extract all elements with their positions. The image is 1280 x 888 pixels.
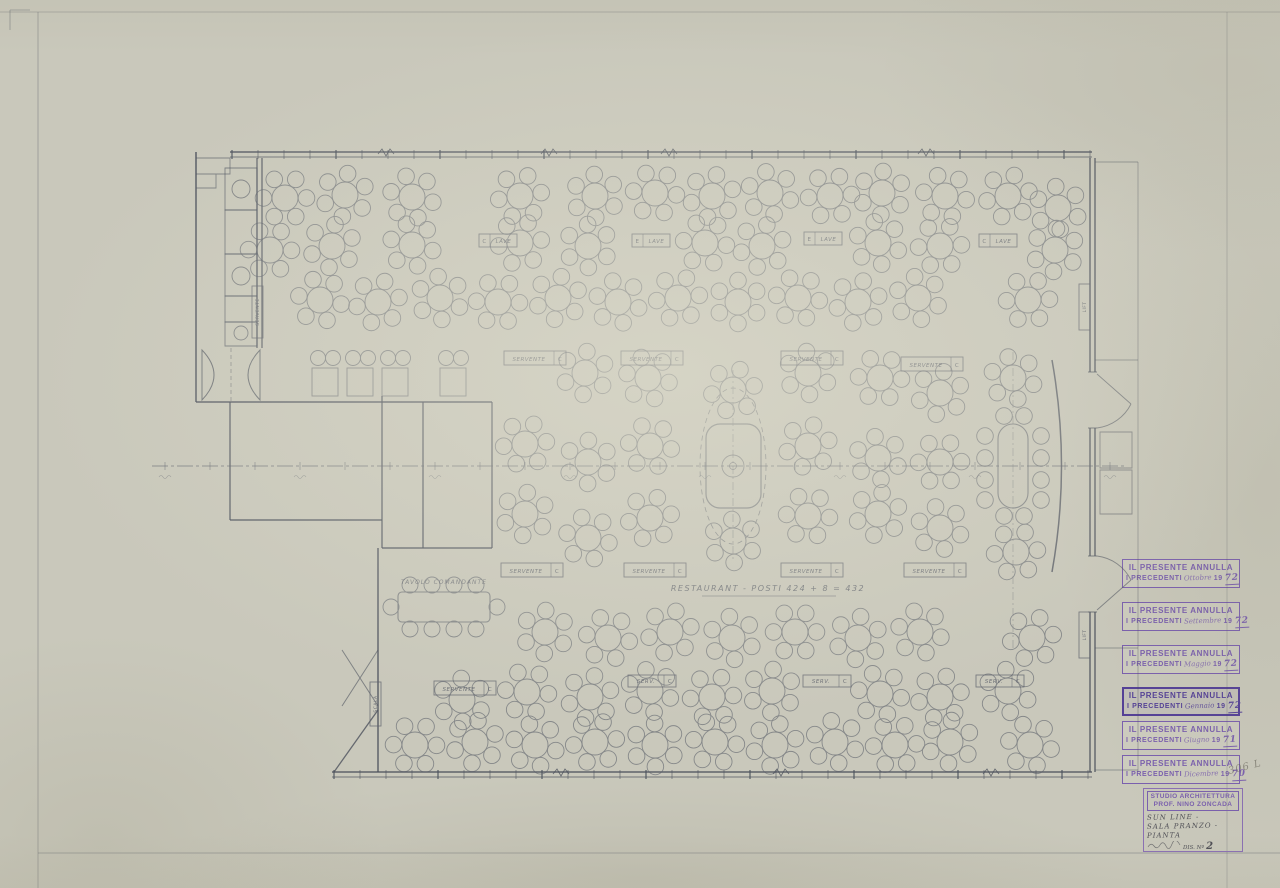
dining-table <box>998 273 1058 328</box>
dining-table <box>620 418 679 474</box>
svg-text:LAVE: LAVE <box>821 237 837 243</box>
dining-table <box>1030 178 1086 237</box>
svg-text:C: C <box>668 679 672 685</box>
dining-table <box>561 216 615 276</box>
serving-table <box>382 368 408 396</box>
lave-station-label: ELAVE <box>632 234 670 247</box>
servente-station-label: SERVENTEC <box>901 357 963 371</box>
dining-table <box>468 275 528 330</box>
dining-table <box>497 664 556 720</box>
drawing-number: 2 <box>1206 841 1213 852</box>
svg-text:SERVENTE: SERVENTE <box>513 357 546 363</box>
serving-table <box>440 368 466 396</box>
captain-table-label: TAVOLO COMANDANTE <box>401 579 487 586</box>
furniture <box>240 163 1086 775</box>
dining-table <box>830 608 886 667</box>
dining-table <box>240 223 300 277</box>
dining-table <box>518 602 573 662</box>
svg-text:SERVENTE: SERVENTE <box>510 569 543 575</box>
svg-text:C: C <box>955 363 959 369</box>
floor-plan-drawing: SERVENTECSERVENTECSERVENTECSERVENTECSERV… <box>0 0 1280 888</box>
dining-table <box>349 273 408 330</box>
serving-table <box>347 368 373 396</box>
svg-text:C: C <box>843 679 847 685</box>
dining-table <box>849 485 906 544</box>
dining-table <box>412 268 468 327</box>
servente-station-label: SERVENTEC <box>904 563 966 577</box>
dining-table <box>780 343 835 402</box>
chair <box>346 351 361 366</box>
dining-table <box>711 272 765 332</box>
dining-table <box>495 416 554 472</box>
dining-table <box>778 488 837 543</box>
svg-text:C: C <box>675 357 679 363</box>
servente-station-label: SERVENTEC <box>504 351 566 365</box>
dining-table <box>910 219 970 274</box>
svg-text:SERVENTE: SERVENTE <box>910 363 943 369</box>
dining-table <box>911 668 969 726</box>
svg-text:LIFT: LIFT <box>1082 629 1088 640</box>
svg-text:C: C <box>488 687 492 693</box>
sheet-border-lines <box>0 10 1280 888</box>
oval-table-group <box>977 352 1050 648</box>
dining-table <box>865 718 925 773</box>
dining-table <box>648 270 707 326</box>
dining-table <box>589 273 647 331</box>
drawing-sheet: { "sheet": { "caption": "RESTAURANT - PO… <box>0 0 1280 888</box>
svg-text:SERVENTE: SERVENTE <box>633 569 666 575</box>
dining-table <box>851 665 910 722</box>
signature-scribble <box>1147 841 1181 849</box>
dining-table <box>561 432 615 492</box>
title-block: STUDIO ARCHITETTURA PROF. NINO ZONCADA S… <box>1143 788 1243 852</box>
lave-station-label: CLAVE <box>479 234 517 247</box>
dining-table <box>578 610 637 667</box>
dining-table <box>800 168 859 223</box>
svg-text:LIFT: LIFT <box>1082 301 1088 312</box>
dining-table <box>317 165 373 224</box>
dining-table <box>986 524 1045 580</box>
dining-table <box>745 661 800 721</box>
dining-table <box>685 714 744 770</box>
dining-table <box>255 171 315 225</box>
dining-table <box>768 270 827 326</box>
svg-text:SERVENTE: SERVENTE <box>790 357 823 363</box>
dining-table <box>506 716 564 774</box>
dining-table <box>765 605 825 659</box>
lave-station-label: CLAVE <box>979 234 1017 247</box>
svg-text:C: C <box>678 569 682 575</box>
dining-table <box>746 716 804 774</box>
dining-table <box>641 603 699 661</box>
dining-table <box>704 608 760 667</box>
dining-table <box>806 713 863 772</box>
dining-table <box>568 166 623 226</box>
seat-count-caption: RESTAURANT - POSTI 424 + 8 = 432 <box>671 584 865 593</box>
drawing-number-label: DIS. Nº <box>1183 845 1204 851</box>
svg-text:SERV.: SERV. <box>985 679 1003 685</box>
svg-text:E: E <box>808 237 812 243</box>
svg-text:C: C <box>1016 679 1020 685</box>
vertical-label: LIFT <box>1079 612 1090 658</box>
dining-table <box>1002 610 1061 667</box>
vertical-label: LIFT <box>1079 284 1090 330</box>
dining-table <box>304 216 360 275</box>
dining-table <box>829 273 887 331</box>
captain-table <box>383 577 505 637</box>
dining-table <box>855 163 910 223</box>
dining-table <box>911 364 968 423</box>
svg-text:C: C <box>482 239 486 245</box>
chair <box>326 351 341 366</box>
servente-station-label: SERVENTEC <box>624 563 686 577</box>
svg-text:SERVENTE: SERVENTE <box>443 687 476 693</box>
drawing-type: PIANTA <box>1147 830 1239 841</box>
dining-table <box>530 268 587 327</box>
chair <box>361 351 376 366</box>
studio-stamp: STUDIO ARCHITETTURA PROF. NINO ZONCADA <box>1147 791 1239 811</box>
dining-table <box>497 484 553 543</box>
svg-text:C: C <box>835 357 839 363</box>
dining-table <box>559 509 617 567</box>
dining-table <box>910 435 970 489</box>
chair <box>396 351 411 366</box>
svg-text:C: C <box>558 357 562 363</box>
dining-table <box>385 718 445 772</box>
architect-name: PROF. NINO ZONCADA <box>1148 801 1238 809</box>
servente-station-label: SERV.C <box>803 675 851 687</box>
servente-station-label: SERVENTEC <box>501 563 563 577</box>
dining-table <box>979 167 1037 225</box>
chair <box>454 351 469 366</box>
dining-table <box>733 217 791 275</box>
serving-table <box>312 368 338 396</box>
servente-station-label: SERVENTEC <box>781 563 843 577</box>
dining-table <box>621 662 678 721</box>
svg-text:LAVE: LAVE <box>996 239 1012 245</box>
dining-table <box>1001 716 1060 773</box>
svg-text:SCALA: SCALA <box>373 695 379 713</box>
dining-table <box>625 165 684 221</box>
svg-text:LAVE: LAVE <box>496 239 512 245</box>
dining-table <box>922 712 977 771</box>
dining-table <box>291 271 350 328</box>
dining-table <box>1027 220 1082 279</box>
svg-text:SERVENTE: SERVENTE <box>913 569 946 575</box>
dining-table <box>383 216 441 274</box>
chair <box>439 351 454 366</box>
studio-name: STUDIO ARCHITETTURA <box>1148 793 1238 801</box>
svg-text:SERVENTE: SERVENTE <box>630 357 663 363</box>
svg-text:C: C <box>982 239 986 245</box>
svg-text:SERV.: SERV. <box>812 679 830 685</box>
chair <box>381 351 396 366</box>
dining-table <box>916 167 975 224</box>
dining-table <box>621 489 680 546</box>
dining-table <box>383 168 441 226</box>
dining-table <box>628 715 682 775</box>
servente-station-label: SERVENTEC <box>621 351 683 365</box>
dining-table <box>980 661 1036 720</box>
dining-table <box>850 428 906 487</box>
dining-table <box>890 268 947 327</box>
svg-text:E: E <box>636 239 640 245</box>
svg-text:SERVENTE: SERVENTE <box>255 298 261 325</box>
chair <box>311 351 326 366</box>
svg-text:C: C <box>835 569 839 575</box>
dining-table <box>741 164 798 223</box>
svg-text:SERVENTE: SERVENTE <box>790 569 823 575</box>
ship-centerline <box>152 455 1125 479</box>
svg-text:C: C <box>958 569 962 575</box>
dining-table <box>565 714 624 770</box>
dining-table <box>447 712 503 771</box>
dining-table <box>435 670 490 730</box>
lave-station-label: ELAVE <box>804 232 842 245</box>
dining-table <box>911 499 968 558</box>
dining-table <box>675 215 734 271</box>
svg-text:LAVE: LAVE <box>649 239 665 245</box>
dining-table <box>490 168 549 225</box>
dining-table <box>891 603 949 661</box>
svg-text:SERV.: SERV. <box>637 679 655 685</box>
svg-text:C: C <box>555 569 559 575</box>
